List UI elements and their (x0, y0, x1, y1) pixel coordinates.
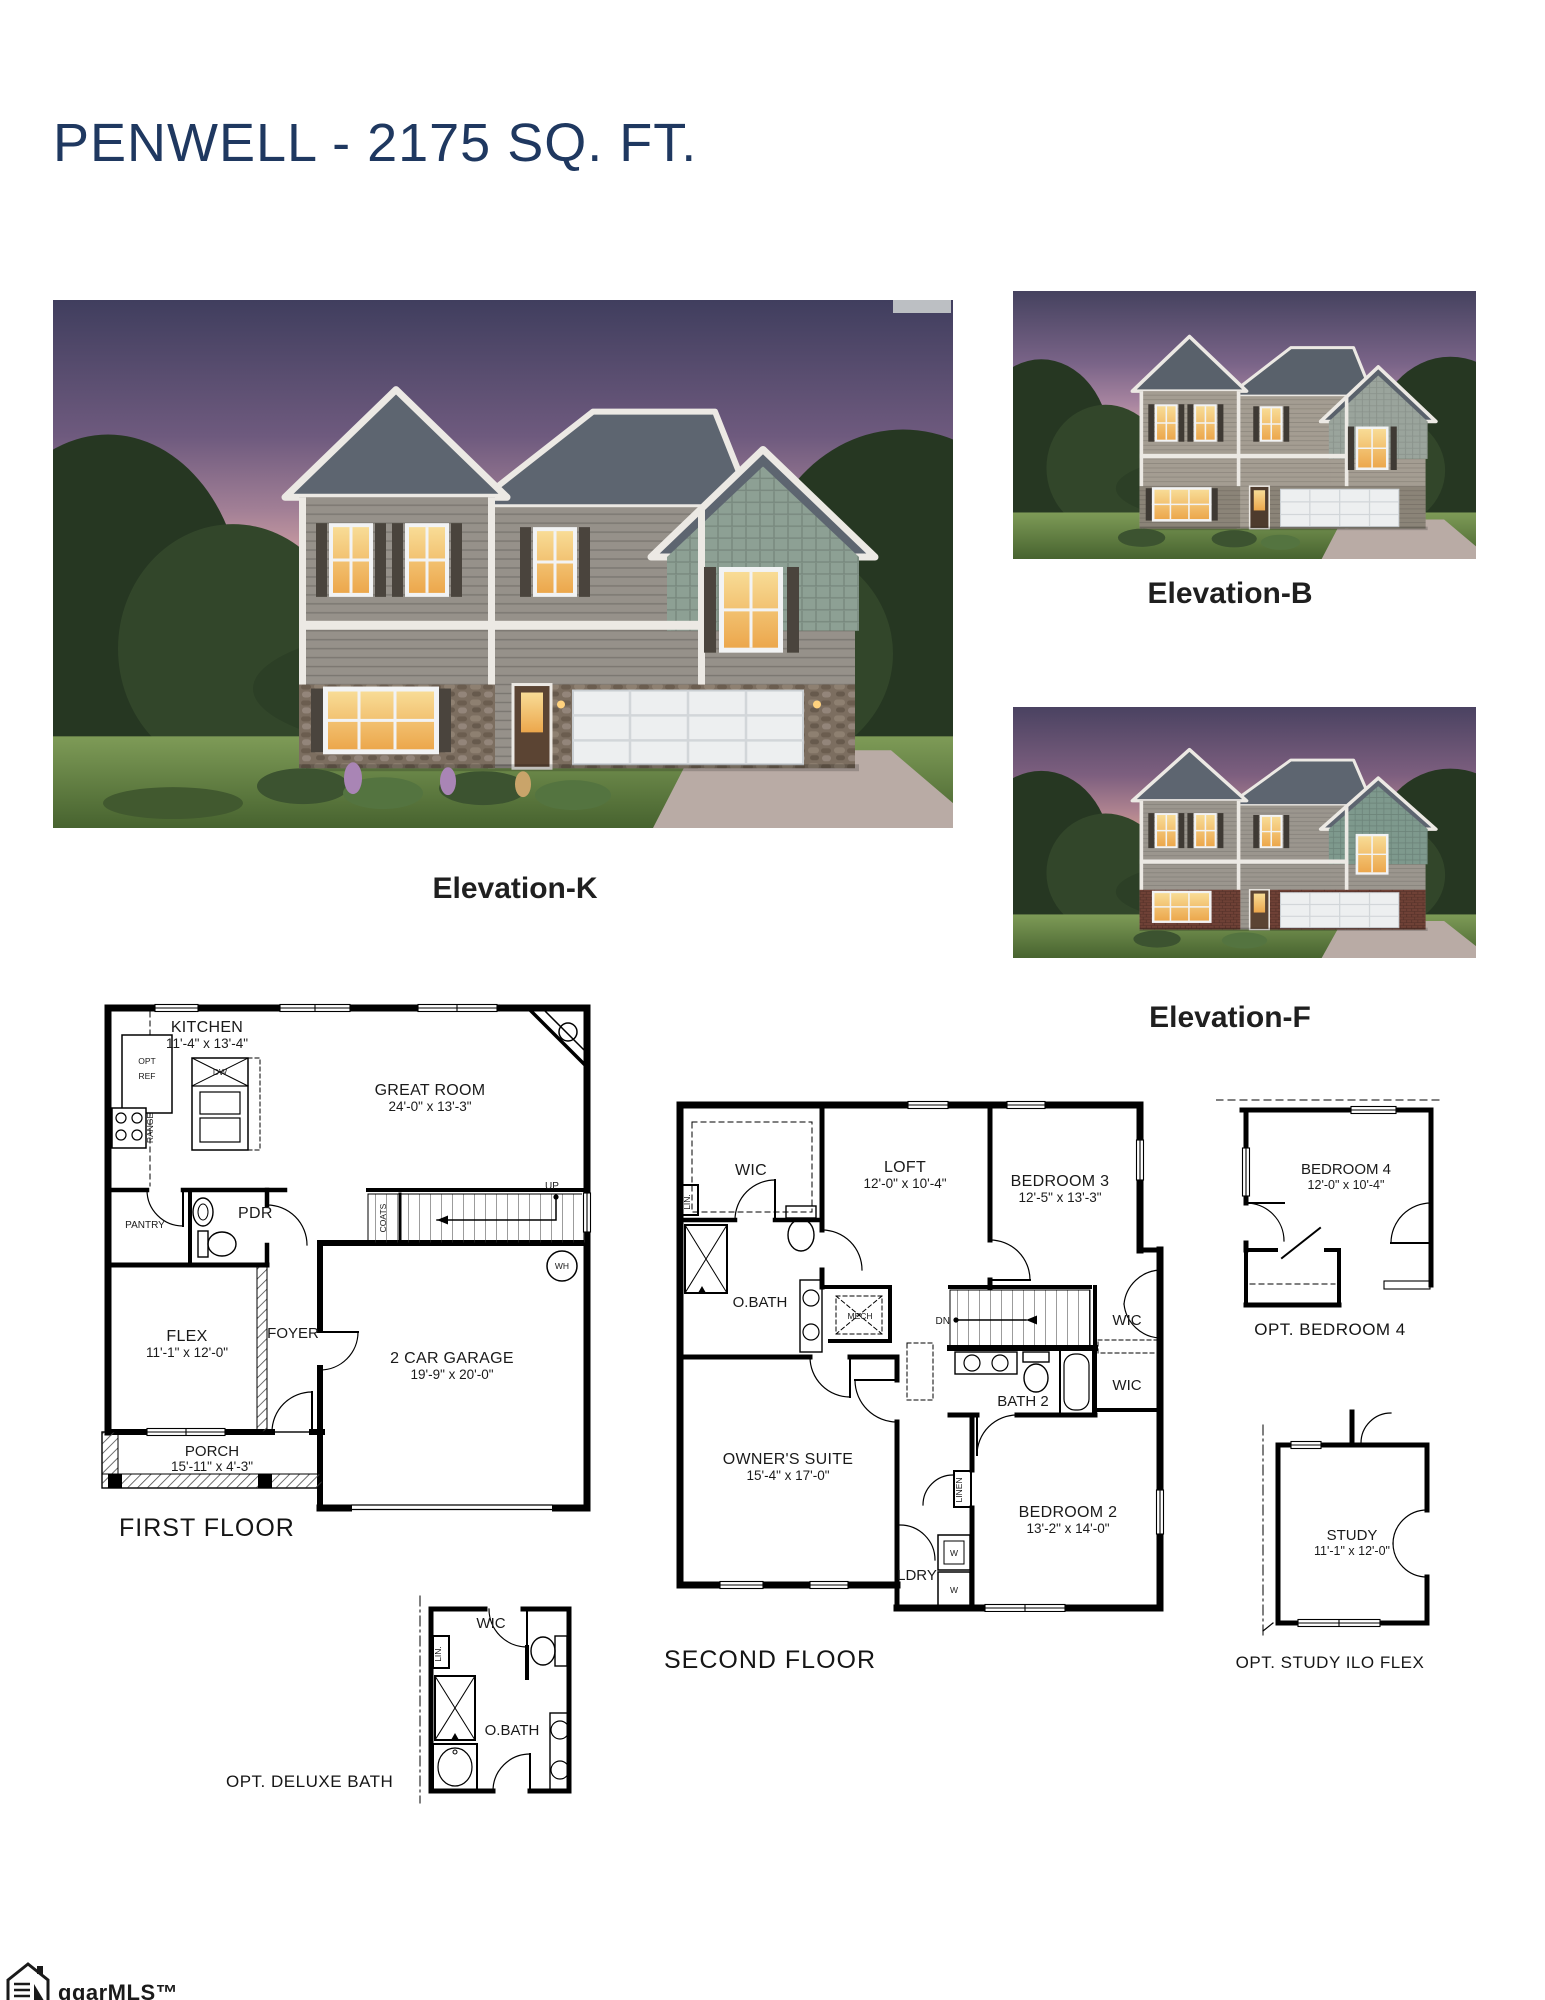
opt-deluxe-bath-caption: OPT. DELUXE BATH (226, 1772, 406, 1792)
room-dims-study: 11'-1" x 12'-0" (1314, 1544, 1390, 1558)
room-label-porch: PORCH (185, 1443, 239, 1460)
window-icon (1007, 1100, 1045, 1110)
front-door (1250, 486, 1270, 528)
toilet-icon (1023, 1352, 1049, 1392)
room-label-kitchen: KITCHEN (171, 1019, 243, 1036)
sink-icon (193, 1198, 213, 1226)
bathtub-icon (1060, 1350, 1093, 1414)
elevation-f-label: Elevation-F (1080, 1001, 1380, 1035)
room-dims-kitchen: 11'-4" x 13'-4" (166, 1036, 248, 1051)
toilet-icon (198, 1231, 236, 1257)
opt-study-plan-drawing: STUDY 11'-1" x 12'-0" (1216, 1400, 1444, 1650)
fireplace-icon (528, 1008, 587, 1067)
window-icon (810, 1580, 848, 1590)
vanity-icon (955, 1352, 1017, 1374)
room-dims-bedroom4: 12'-0" x 10'-4" (1308, 1178, 1385, 1192)
photo-elevation-k (53, 300, 953, 828)
page-title: PENWELL - 2175 SQ. FT. (53, 112, 697, 174)
porch-lamp (557, 700, 565, 708)
front-door (513, 685, 551, 769)
label-bath2: BATH 2 (997, 1393, 1048, 1410)
room-label-flex: FLEX (166, 1328, 207, 1345)
room-label-bedroom2: BEDROOM 2 (1019, 1504, 1118, 1521)
photo-edge-artifact (893, 300, 951, 313)
window-icon (582, 1193, 592, 1232)
vanity-icon (800, 1280, 822, 1352)
room-dims-flex: 11'-1" x 12'-0" (146, 1345, 228, 1360)
first-floor-caption: FIRST FLOOR (119, 1514, 295, 1543)
bay-window (1152, 891, 1212, 923)
window-icon (280, 1003, 350, 1013)
room-label-owners-suite: OWNER'S SUITE (723, 1451, 854, 1468)
room-label-pdr: PDR (238, 1205, 273, 1222)
second-floor-caption: SECOND FLOOR (664, 1646, 876, 1675)
label-washer: W (950, 1548, 958, 1558)
window-icon (1135, 1140, 1145, 1180)
room-label-loft: LOFT (884, 1159, 926, 1176)
elevation-k-rendering (53, 300, 953, 828)
bay-window (311, 687, 451, 755)
room-label-bedroom3: BEDROOM 3 (1011, 1173, 1110, 1190)
label-wic-owner: WIC (735, 1162, 767, 1179)
label-wic-lower: WIC (1112, 1377, 1141, 1394)
label-coats: COATS (378, 1203, 388, 1232)
bathtub-icon (433, 1744, 477, 1791)
opt-bedroom4-plan-drawing: BEDROOM 4 12'-0" x 10'-4" (1216, 1088, 1444, 1313)
room-label-study: STUDY (1327, 1527, 1378, 1544)
label-lin: LIN. (682, 1194, 692, 1210)
opt-study-caption: OPT. STUDY ILO FLEX (1216, 1653, 1444, 1673)
elevation-b-rendering (1013, 291, 1476, 559)
window-icon (908, 1100, 948, 1110)
label-wic-upper: WIC (1112, 1312, 1141, 1329)
mls-watermark: ggarMLS™ (4, 1960, 178, 2000)
window-icon (1351, 1105, 1396, 1115)
first-floor-plan-drawing: KITCHEN 11'-4" x 13'-4" GREAT ROOM 24'-0… (100, 1000, 610, 1512)
elevation-f-rendering (1013, 707, 1476, 958)
window-icon (147, 1427, 225, 1437)
french-doors-icon (1393, 1510, 1427, 1577)
room-label-bedroom4: BEDROOM 4 (1301, 1161, 1391, 1178)
toilet-icon (531, 1636, 567, 1666)
range-icon (112, 1108, 146, 1148)
label-deluxe-wic: WIC (476, 1615, 505, 1632)
garage-door (573, 691, 803, 765)
elevation-k-label: Elevation-K (365, 872, 665, 906)
label-deluxe-obath: O.BATH (485, 1722, 540, 1739)
vanity-icon (550, 1713, 569, 1791)
room-label-great-room: GREAT ROOM (375, 1082, 486, 1099)
photo-elevation-b (1013, 291, 1476, 559)
marketing-sheet: PENWELL - 2175 SQ. FT. (0, 0, 1545, 2000)
label-up: UP (545, 1181, 559, 1192)
bay-window (1146, 487, 1218, 521)
window-icon (418, 1003, 497, 1013)
front-door (1250, 890, 1270, 930)
room-label-garage: 2 CAR GARAGE (390, 1350, 514, 1367)
window-icon (1241, 1148, 1251, 1196)
toilet-icon (786, 1206, 816, 1251)
window-icon (720, 1580, 763, 1590)
room-dims-bedroom3: 12'-5" x 13'-3" (1018, 1190, 1101, 1205)
room-dims-porch: 15'-11" x 4'-3" (171, 1459, 253, 1474)
garage-lamp (813, 700, 821, 708)
window-icon (1155, 1490, 1165, 1534)
label-ldry: LDRY (897, 1567, 937, 1584)
label-dryer: W (950, 1585, 958, 1595)
room-dims-bedroom2: 13'-2" x 14'-0" (1026, 1521, 1109, 1536)
label-obath: O.BATH (733, 1294, 788, 1311)
label-opt-ref-2: REF (139, 1071, 156, 1081)
label-linen: LINEN (954, 1477, 964, 1502)
label-deluxe-lin: LIN. (433, 1646, 443, 1662)
room-dims-garage: 19'-9" x 20'-0" (410, 1367, 493, 1382)
second-floor-plan-drawing: WIC LIN. O.BATH LOFT 12'-0" x 10'-4" BED… (660, 1080, 1165, 1612)
opt-bedroom4-caption: OPT. BEDROOM 4 (1216, 1320, 1444, 1340)
garage-door (1281, 489, 1399, 526)
room-label-foyer: FOYER (267, 1325, 319, 1342)
window-icon (155, 1003, 198, 1013)
label-range: RANGE (145, 1113, 155, 1144)
shower-icon (435, 1676, 475, 1740)
photo-elevation-f (1013, 707, 1476, 958)
watermark-text: ggarMLS™ (58, 1980, 178, 2000)
elevation-b-label: Elevation-B (1080, 577, 1380, 611)
label-wh: WH (555, 1261, 569, 1271)
window-icon (1291, 1440, 1321, 1450)
room-dims-great-room: 24'-0" x 13'-3" (388, 1099, 471, 1114)
label-dn: DN (936, 1316, 950, 1327)
label-mech: MECH (847, 1311, 872, 1321)
garage-door (1281, 893, 1399, 928)
house-logo-icon (4, 1960, 56, 2000)
opt-deluxe-bath-plan-drawing: WIC LIN. O.BATH (405, 1588, 590, 1808)
window-icon (1298, 1618, 1380, 1628)
room-dims-owners-suite: 15'-4" x 17'-0" (746, 1468, 829, 1483)
shower-icon (685, 1225, 727, 1293)
window-icon (985, 1603, 1065, 1612)
label-opt-ref-1: OPT (138, 1056, 155, 1066)
label-dw: DW (213, 1067, 227, 1077)
room-dims-loft: 12'-0" x 10'-4" (863, 1176, 946, 1191)
room-label-pantry: PANTRY (125, 1220, 165, 1231)
